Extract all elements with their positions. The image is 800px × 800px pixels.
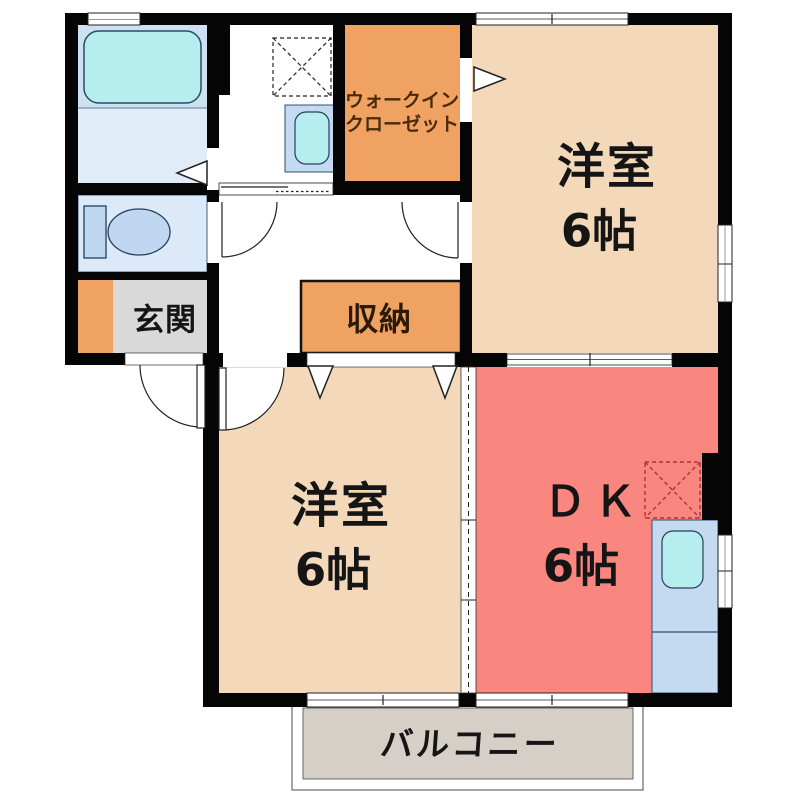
western-room-side-window xyxy=(718,225,732,302)
floor-plan: ウォークイン クローゼット 洋室 6帖 収納 玄関 洋室 6帖 ＤＫ 6帖 バル… xyxy=(0,0,800,800)
washing-machine-icon xyxy=(273,38,331,96)
bathroom-window xyxy=(88,13,140,25)
entrance-step xyxy=(78,280,113,353)
western-room-top-label: 洋室 xyxy=(557,143,657,191)
washbasin-sink-icon xyxy=(295,112,329,164)
dk-floor-notch xyxy=(702,367,718,453)
storage-label: 収納 xyxy=(346,303,412,335)
western-room-bottom-label: 洋室 xyxy=(291,482,391,530)
kitchen-side-window xyxy=(718,535,732,608)
balcony-window-right xyxy=(476,693,628,707)
western-room-top-size: 6帖 xyxy=(561,209,637,254)
walk-in-closet-label-line2: クローゼット xyxy=(345,116,459,135)
room-partition-sliding xyxy=(461,367,476,693)
entrance-door-opening xyxy=(125,353,203,365)
kitchen-sink-icon xyxy=(662,531,703,588)
toilet-tank-icon xyxy=(84,206,106,258)
bathtub-icon xyxy=(84,31,201,103)
dk-size: 6帖 xyxy=(543,544,619,589)
entrance-label: 玄関 xyxy=(133,306,197,337)
balcony-window-left xyxy=(307,693,459,707)
western-room-top-door xyxy=(402,202,458,258)
entrance-front-door xyxy=(140,365,205,428)
storage-opening xyxy=(307,353,455,367)
dk-label: ＤＫ xyxy=(544,481,644,523)
toilet-door xyxy=(222,202,277,257)
washroom-sliding-door xyxy=(219,183,333,195)
toilet-bowl-icon xyxy=(108,209,170,255)
western-room-bottom-size: 6帖 xyxy=(295,548,371,593)
balcony-label: バルコニー xyxy=(379,728,561,761)
dk-room-sliding-door xyxy=(507,353,672,366)
walk-in-closet-label-line1: ウォークイン xyxy=(345,92,459,111)
western-room-top-window xyxy=(476,13,628,25)
